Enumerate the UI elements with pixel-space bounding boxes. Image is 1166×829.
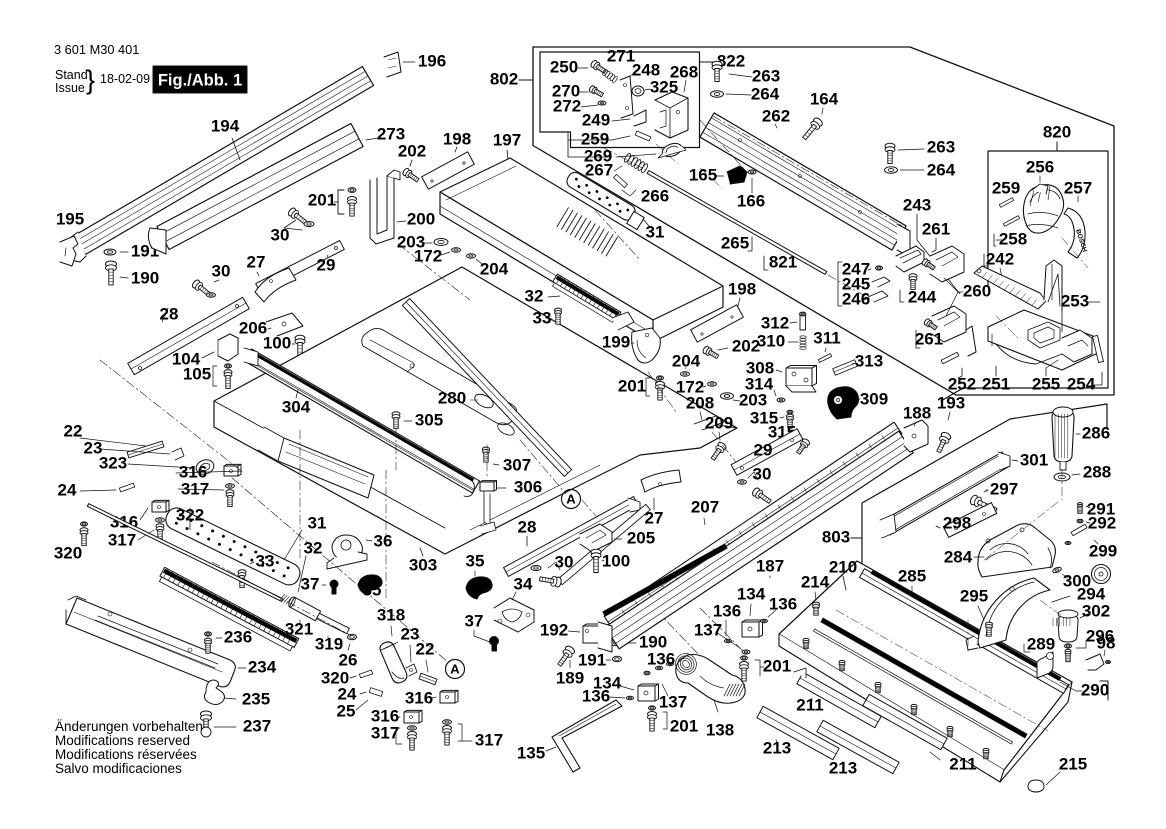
svg-text:312: 312 [761,313,789,332]
svg-text:138: 138 [706,720,734,739]
svg-text:309: 309 [860,389,888,408]
svg-text:166: 166 [737,191,765,210]
svg-text:27: 27 [645,508,664,527]
svg-text:100: 100 [263,333,291,352]
svg-text:35: 35 [363,580,382,599]
svg-text:136: 136 [582,686,610,705]
svg-text:28: 28 [518,517,537,536]
svg-text:316: 316 [405,688,433,707]
svg-text:211: 211 [949,754,976,773]
svg-text:207: 207 [691,497,719,516]
svg-text:192: 192 [540,620,568,639]
svg-text:27: 27 [247,252,266,271]
svg-text:30: 30 [555,552,574,571]
svg-text:298: 298 [943,513,971,532]
svg-text:284: 284 [944,547,973,566]
svg-text:304: 304 [282,397,311,416]
svg-text:195: 195 [56,209,84,228]
svg-text:313: 313 [855,351,883,370]
svg-text:317: 317 [475,730,503,749]
svg-text:Modifications reserved: Modifications reserved [55,733,190,748]
svg-text:25: 25 [337,701,356,720]
svg-text:29: 29 [754,440,773,459]
svg-text:100: 100 [602,551,630,570]
svg-text:201: 201 [308,190,336,209]
svg-text:242: 242 [986,249,1014,268]
svg-text:Salvo modificaciones: Salvo modificaciones [55,761,182,776]
svg-text:28: 28 [160,304,179,323]
svg-text:266: 266 [641,186,669,205]
svg-text:299: 299 [1089,541,1117,560]
svg-text:Änderungen vorbehalten: Änderungen vorbehalten [55,719,203,734]
svg-text:201: 201 [763,656,791,675]
svg-text:317: 317 [371,723,399,742]
svg-text:Modifications réservées: Modifications réservées [55,747,197,762]
svg-text:34: 34 [514,574,533,593]
svg-text:290: 290 [1081,680,1109,699]
svg-text:172: 172 [414,246,442,265]
svg-text:188: 188 [903,403,931,422]
svg-text:200: 200 [407,209,435,228]
svg-text:214: 214 [801,572,830,591]
svg-text:236: 236 [224,627,252,646]
svg-text:208: 208 [686,393,714,412]
svg-text:302: 302 [1082,601,1110,620]
svg-text:821: 821 [769,252,797,271]
svg-text:263: 263 [752,66,780,85]
svg-text:262: 262 [762,106,790,125]
svg-text:198: 198 [443,129,471,148]
svg-text:258: 258 [999,229,1027,248]
svg-text:320: 320 [54,543,82,562]
svg-text:249: 249 [582,110,610,129]
svg-text:A: A [566,491,576,506]
svg-text:802: 802 [490,69,518,88]
svg-text:237: 237 [243,716,271,735]
svg-text:135: 135 [517,743,545,762]
svg-text:198: 198 [728,279,756,298]
svg-text:22: 22 [416,639,435,658]
svg-text:201: 201 [670,716,698,735]
svg-text:301: 301 [1020,450,1048,469]
svg-text:165: 165 [689,165,717,184]
svg-text:33: 33 [256,551,275,570]
svg-text:32: 32 [525,286,544,305]
svg-text:305: 305 [415,410,443,429]
svg-text:285: 285 [898,566,926,585]
svg-text:234: 234 [248,657,277,676]
svg-text:205: 205 [627,528,655,547]
svg-text:37: 37 [301,574,320,593]
svg-text:199: 199 [602,332,630,351]
svg-text:261: 261 [922,219,950,238]
svg-text:311: 311 [813,328,840,347]
svg-text:31: 31 [646,222,665,241]
svg-text:314: 314 [745,374,774,393]
svg-text:35: 35 [466,551,485,570]
svg-text:26: 26 [339,650,358,669]
svg-text:136: 136 [769,594,797,613]
svg-text:29: 29 [317,255,336,274]
svg-text:323: 323 [99,453,127,472]
svg-text:196: 196 [418,51,446,70]
svg-text:264: 264 [927,160,956,179]
svg-text:303: 303 [409,555,437,574]
svg-text:33: 33 [533,308,552,327]
svg-text:204: 204 [672,351,701,370]
svg-text:213: 213 [829,758,857,777]
svg-text:820: 820 [1043,122,1071,141]
svg-text:194: 194 [211,116,240,135]
svg-text:215: 215 [1059,754,1087,773]
svg-text:297: 297 [990,479,1018,498]
svg-text:24: 24 [58,480,77,499]
svg-text:257: 257 [1064,178,1092,197]
svg-text:36: 36 [374,531,393,550]
svg-text:137: 137 [694,620,722,639]
svg-text:197: 197 [493,130,521,149]
svg-text:18-02-09: 18-02-09 [100,72,150,86]
svg-text:190: 190 [131,268,159,287]
svg-text:}: } [86,65,95,95]
svg-text:3 601 M30 401: 3 601 M30 401 [54,42,139,57]
svg-text:30: 30 [271,225,290,244]
svg-text:204: 204 [480,259,509,278]
svg-text:30: 30 [753,464,772,483]
svg-text:268: 268 [670,62,698,81]
svg-text:136: 136 [713,601,741,620]
svg-text:254: 254 [1067,374,1096,393]
svg-text:Fig./Abb. 1: Fig./Abb. 1 [158,71,242,89]
svg-text:307: 307 [503,455,531,474]
svg-text:322: 322 [176,505,204,524]
svg-text:213: 213 [763,738,791,757]
svg-text:264: 264 [751,84,780,103]
svg-text:136: 136 [647,649,675,668]
svg-text:295: 295 [960,586,988,605]
svg-text:306: 306 [514,477,542,496]
svg-text:137: 137 [659,692,687,711]
svg-text:Stand: Stand [55,68,88,82]
svg-text:202: 202 [398,141,426,160]
svg-text:310: 310 [757,331,785,350]
svg-text:253: 253 [1061,291,1089,310]
svg-text:280: 280 [438,388,466,407]
svg-text:263: 263 [927,137,955,156]
svg-text:265: 265 [721,233,749,252]
svg-text:261: 261 [915,329,943,348]
svg-text:30: 30 [212,261,231,280]
svg-text:211: 211 [796,695,823,714]
svg-text:317: 317 [181,479,209,498]
svg-text:803: 803 [822,527,850,546]
svg-text:272: 272 [553,96,581,115]
svg-text:321: 321 [285,619,313,638]
svg-text:267: 267 [585,160,613,179]
svg-text:105: 105 [183,364,211,383]
svg-text:201: 201 [618,376,646,395]
svg-text:189: 189 [556,668,584,687]
svg-text:288: 288 [1083,462,1111,481]
svg-text:256: 256 [1026,157,1054,176]
svg-text:187: 187 [756,556,784,575]
svg-text:164: 164 [810,89,839,108]
svg-text:317: 317 [108,530,136,549]
svg-text:250: 250 [550,57,578,76]
svg-text:235: 235 [242,689,270,708]
svg-text:259: 259 [992,178,1020,197]
svg-text:252: 252 [948,374,976,393]
svg-text:209: 209 [705,413,733,432]
svg-text:292: 292 [1088,513,1116,532]
svg-text:286: 286 [1082,423,1110,442]
svg-text:A: A [450,661,460,676]
svg-text:243: 243 [903,195,931,214]
svg-text:37: 37 [465,611,484,630]
svg-text:210: 210 [829,557,857,576]
svg-text:289: 289 [1027,634,1055,653]
svg-text:251: 251 [982,374,1010,393]
svg-text:244: 244 [908,287,937,306]
svg-text:260: 260 [963,281,991,300]
svg-text:98: 98 [1097,633,1116,652]
svg-text:255: 255 [1032,374,1060,393]
svg-text:246: 246 [842,289,870,308]
svg-text:31: 31 [308,513,327,532]
svg-text:22: 22 [64,421,83,440]
svg-text:Issue: Issue [55,81,85,95]
svg-text:191: 191 [578,650,606,669]
svg-text:193: 193 [937,393,965,412]
